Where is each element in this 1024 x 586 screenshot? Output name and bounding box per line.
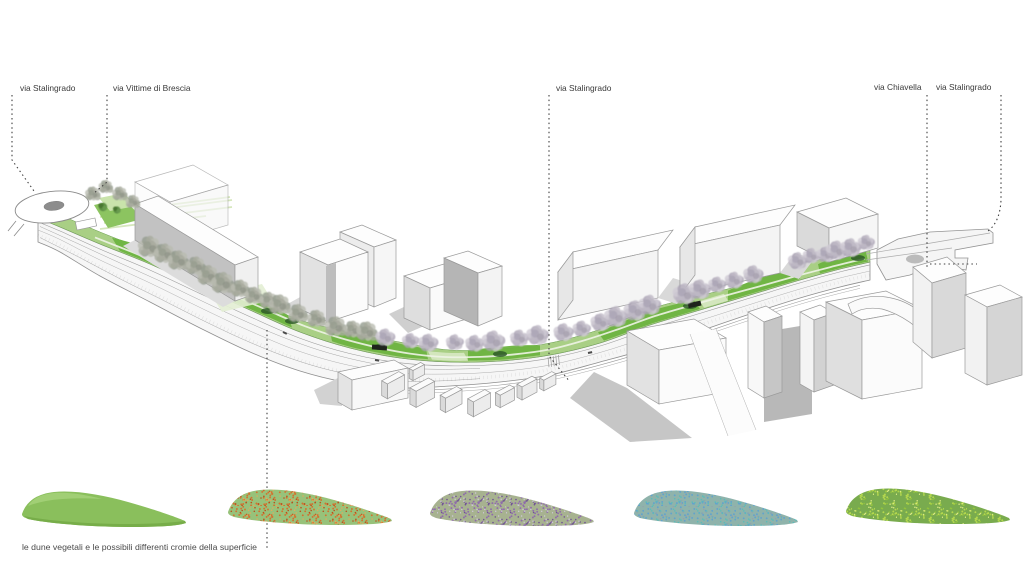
- svg-text:via Stalingrado: via Stalingrado: [20, 83, 76, 93]
- svg-text:le dune vegetali e le possibil: le dune vegetali e le possibili differen…: [22, 542, 257, 552]
- svg-text:via Stalingrado: via Stalingrado: [556, 83, 612, 93]
- svg-text:via Vittime di Brescia: via Vittime di Brescia: [113, 83, 191, 93]
- svg-text:via Chiavella: via Chiavella: [874, 82, 922, 92]
- svg-text:via Stalingrado: via Stalingrado: [936, 82, 992, 92]
